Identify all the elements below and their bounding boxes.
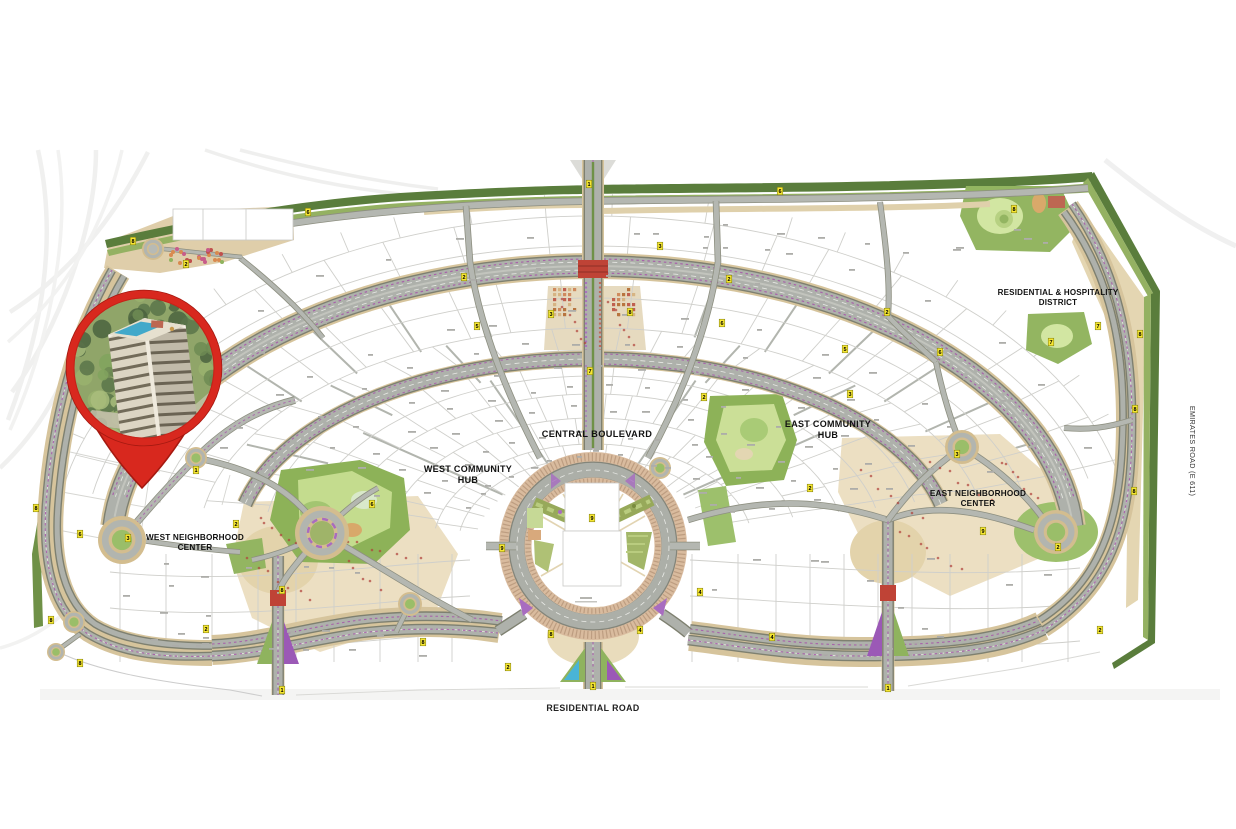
svg-text:8: 8	[628, 310, 631, 316]
svg-text:3: 3	[955, 452, 958, 458]
svg-text:2: 2	[885, 310, 888, 316]
svg-text:8: 8	[1132, 489, 1135, 495]
svg-text:7: 7	[1096, 324, 1099, 330]
svg-text:3: 3	[549, 312, 552, 318]
svg-text:6: 6	[78, 532, 81, 538]
svg-text:2: 2	[204, 627, 207, 633]
svg-text:8: 8	[1138, 332, 1141, 338]
svg-text:WEST NEIGHBORHOOD: WEST NEIGHBORHOOD	[146, 533, 244, 542]
svg-text:DISTRICT: DISTRICT	[1039, 298, 1078, 307]
svg-text:5: 5	[843, 347, 846, 353]
svg-text:8: 8	[1012, 207, 1015, 213]
svg-text:6: 6	[938, 350, 941, 356]
svg-text:5: 5	[475, 324, 478, 330]
svg-text:9: 9	[981, 529, 984, 535]
svg-text:1: 1	[591, 684, 594, 690]
svg-text:EAST NEIGHBORHOOD: EAST NEIGHBORHOOD	[930, 489, 1026, 498]
svg-text:9: 9	[590, 516, 593, 522]
svg-text:2: 2	[727, 277, 730, 283]
svg-text:CENTRAL BOULEVARD: CENTRAL BOULEVARD	[542, 429, 653, 439]
svg-text:6: 6	[778, 189, 781, 195]
svg-text:8: 8	[280, 588, 283, 594]
svg-text:RESIDENTIAL & HOSPITALITY: RESIDENTIAL & HOSPITALITY	[998, 288, 1119, 297]
svg-text:2: 2	[184, 262, 187, 268]
svg-text:2: 2	[462, 275, 465, 281]
svg-text:EMIRATES ROAD (E 611): EMIRATES ROAD (E 611)	[1188, 406, 1197, 496]
svg-text:1: 1	[886, 686, 889, 692]
svg-text:WEST COMMUNITY: WEST COMMUNITY	[424, 464, 512, 474]
svg-text:EAST COMMUNITY: EAST COMMUNITY	[785, 419, 871, 429]
svg-text:7: 7	[1049, 340, 1052, 346]
svg-text:8: 8	[131, 239, 134, 245]
svg-text:8: 8	[78, 661, 81, 667]
svg-text:2: 2	[506, 665, 509, 671]
svg-text:HUB: HUB	[458, 475, 479, 485]
svg-text:2: 2	[234, 522, 237, 528]
svg-text:8: 8	[421, 640, 424, 646]
svg-text:6: 6	[370, 502, 373, 508]
svg-text:CENTER: CENTER	[178, 543, 213, 552]
svg-text:2: 2	[702, 395, 705, 401]
svg-text:1: 1	[280, 688, 283, 694]
svg-text:8: 8	[1133, 407, 1136, 413]
svg-text:RESIDENTIAL ROAD: RESIDENTIAL ROAD	[546, 703, 639, 713]
svg-text:2: 2	[1098, 628, 1101, 634]
svg-text:CENTER: CENTER	[961, 499, 996, 508]
svg-text:6: 6	[720, 321, 723, 327]
svg-text:3: 3	[126, 536, 129, 542]
svg-text:1: 1	[587, 182, 590, 188]
svg-text:9: 9	[500, 546, 503, 552]
svg-text:7: 7	[588, 369, 591, 375]
svg-text:2: 2	[808, 486, 811, 492]
svg-text:HUB: HUB	[818, 430, 839, 440]
svg-text:8: 8	[549, 632, 552, 638]
svg-text:1: 1	[194, 468, 197, 474]
svg-text:3: 3	[848, 392, 851, 398]
svg-text:6: 6	[306, 210, 309, 216]
svg-text:2: 2	[1056, 545, 1059, 551]
svg-text:3: 3	[658, 244, 661, 250]
svg-text:8: 8	[34, 506, 37, 512]
svg-text:8: 8	[49, 618, 52, 624]
